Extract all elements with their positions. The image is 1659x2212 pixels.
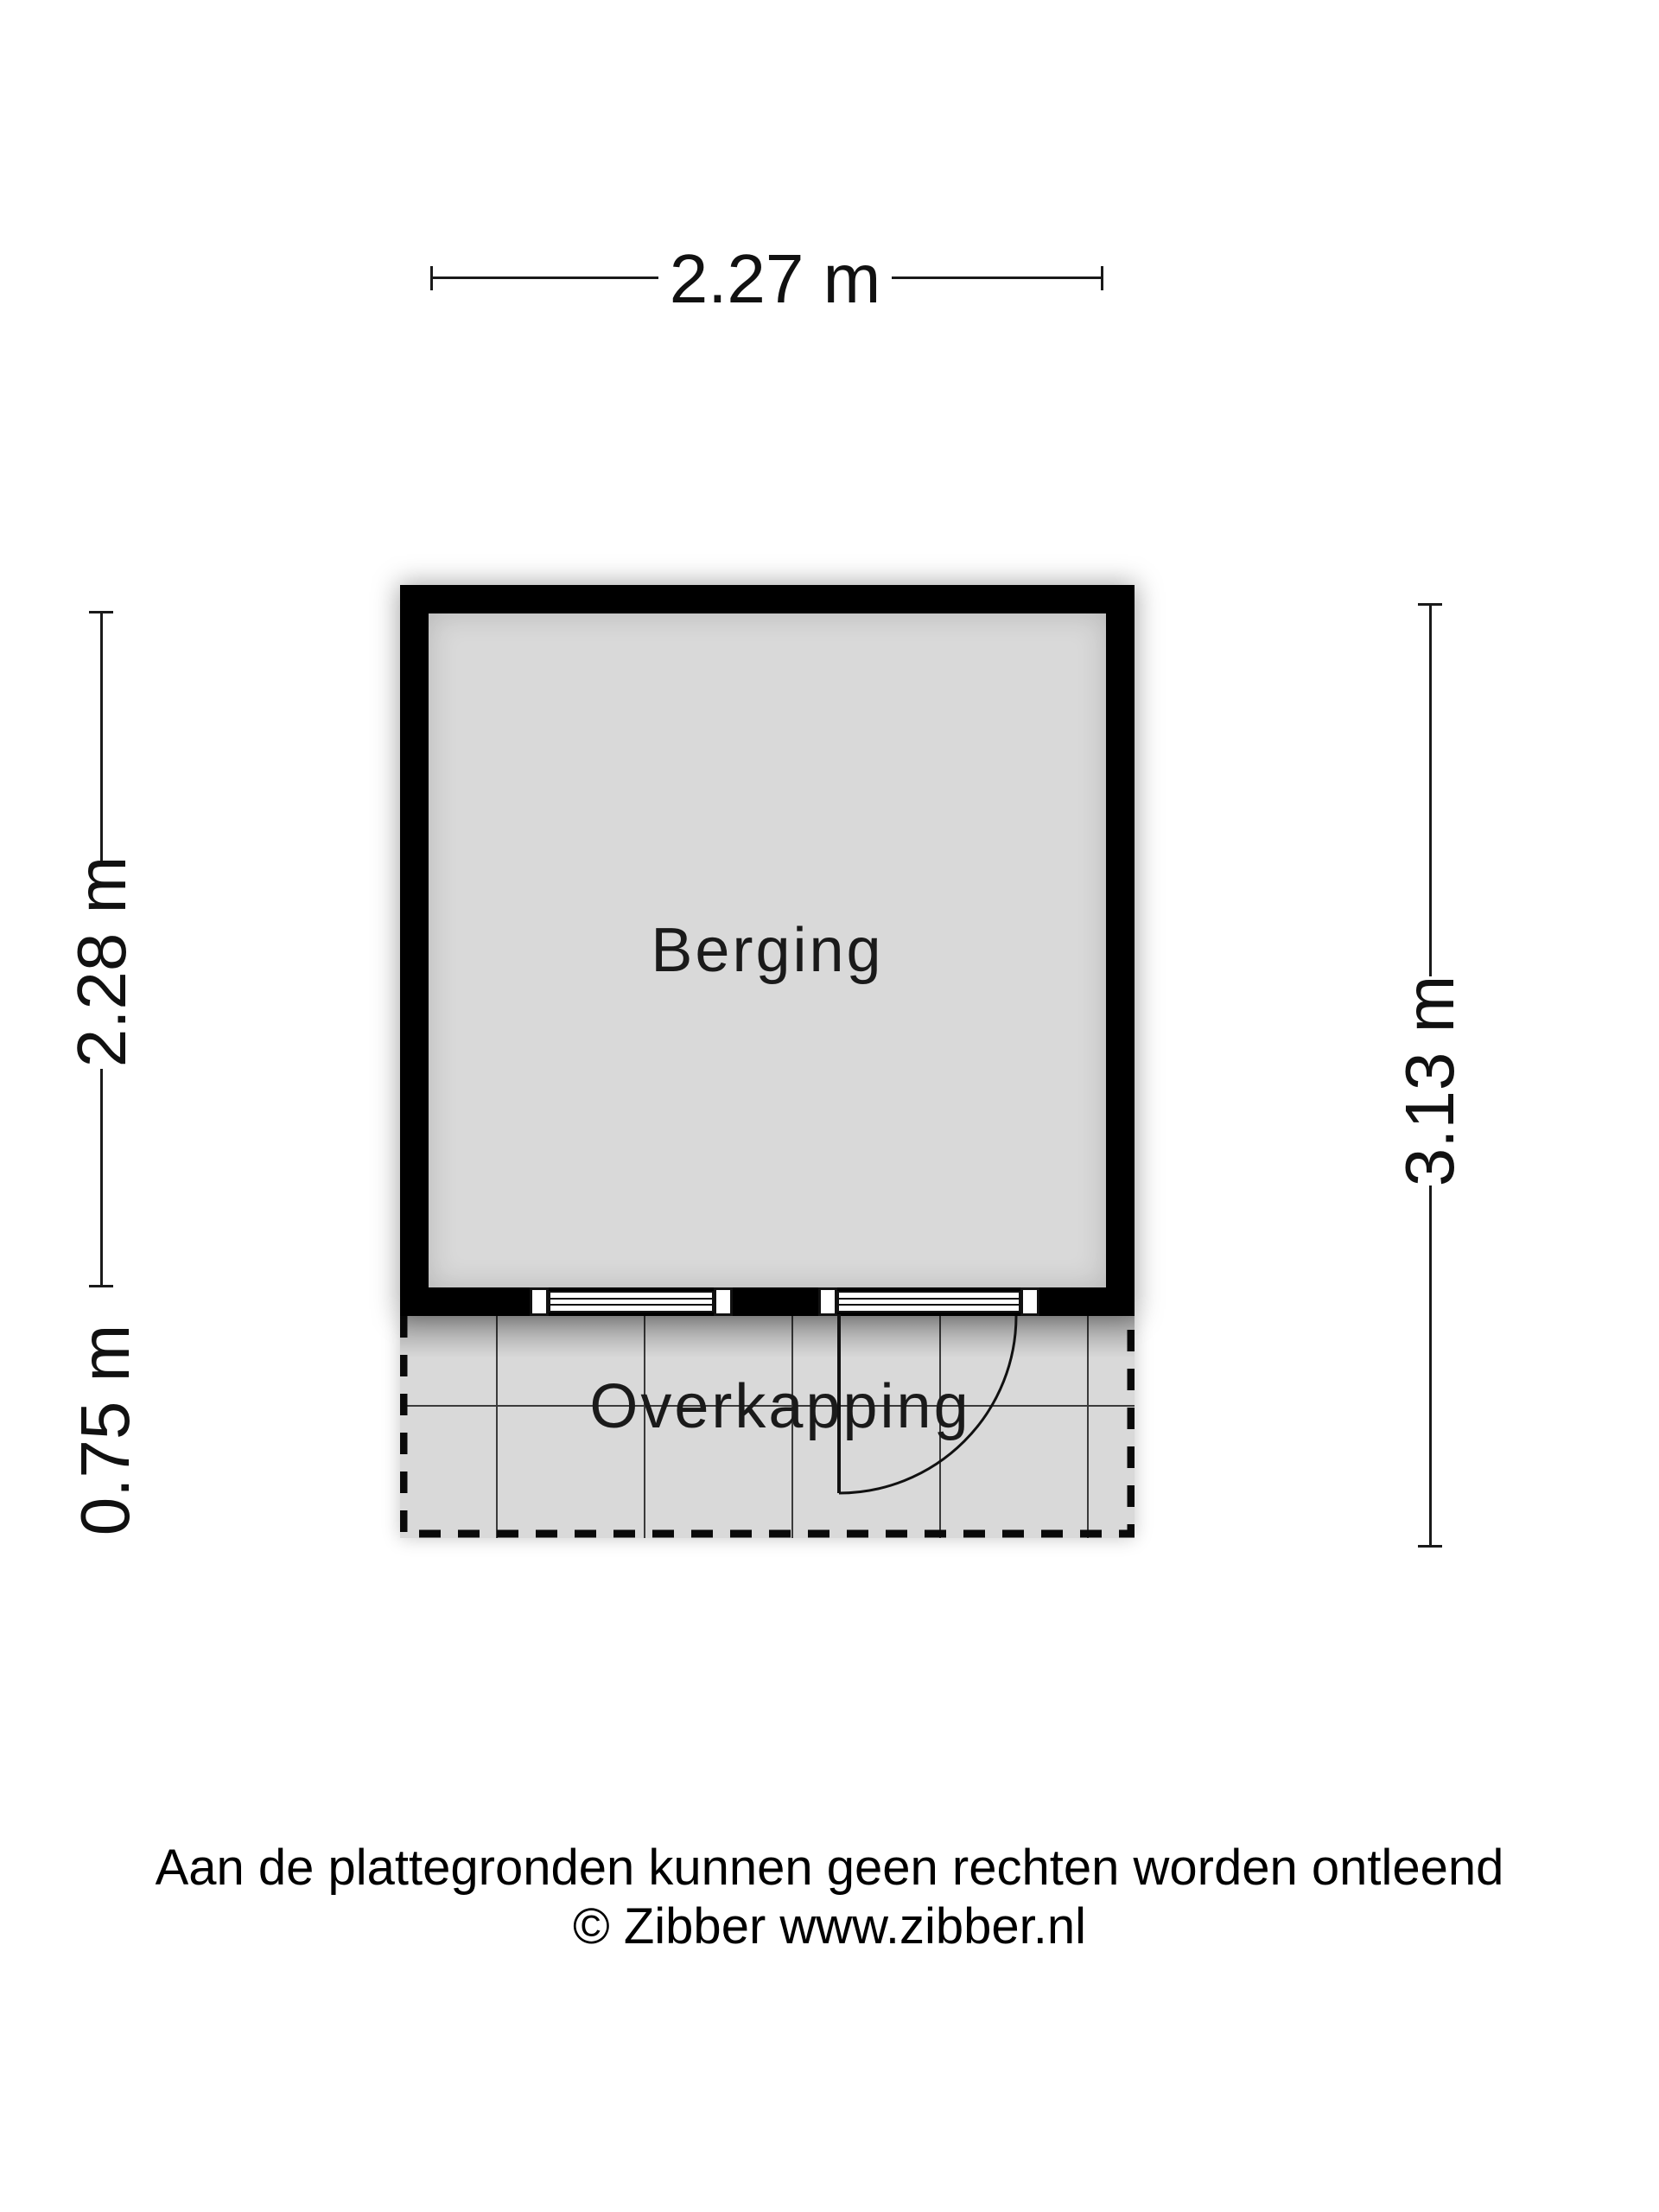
dimension-label-room-height: 2.28 m: [67, 856, 137, 1068]
floorplan: 2.27 m 2.28 m 0.75 m 3.13 m Berging: [0, 0, 1659, 2212]
window-glazing: [549, 1291, 714, 1313]
dimension-line: [1429, 605, 1432, 976]
dimension-line: [432, 276, 658, 279]
door-swing-arc: [839, 1316, 1016, 1493]
window-frame-block: [714, 1287, 733, 1316]
dimension-tick: [1418, 1545, 1442, 1548]
room-berging: Berging: [400, 585, 1135, 1316]
dimension-label-total-height: 3.13 m: [1395, 976, 1465, 1187]
window-left: [530, 1287, 733, 1316]
door-swing: [825, 1309, 1033, 1508]
window-frame-block: [530, 1287, 549, 1316]
glazing-line: [839, 1304, 1019, 1306]
credit-text: © Zibber www.zibber.nl: [0, 1897, 1659, 1956]
dimension-line: [100, 613, 103, 861]
glazing-line: [550, 1304, 712, 1306]
dimension-line: [1429, 1185, 1432, 1547]
disclaimer-text: Aan de plattegronden kunnen geen rechten…: [0, 1839, 1659, 1897]
dimension-line: [892, 276, 1103, 279]
glazing-line: [550, 1298, 712, 1300]
dimension-line: [100, 1069, 103, 1287]
footer: Aan de plattegronden kunnen geen rechten…: [0, 1839, 1659, 1957]
glazing-line: [839, 1298, 1019, 1300]
room-label-berging: Berging: [651, 915, 883, 986]
dimension-tick: [1101, 266, 1103, 290]
dimension-label-overhang-depth: 0.75 m: [71, 1325, 140, 1536]
dimension-tick: [89, 1285, 113, 1287]
dimension-label-width: 2.27 m: [670, 245, 881, 314]
